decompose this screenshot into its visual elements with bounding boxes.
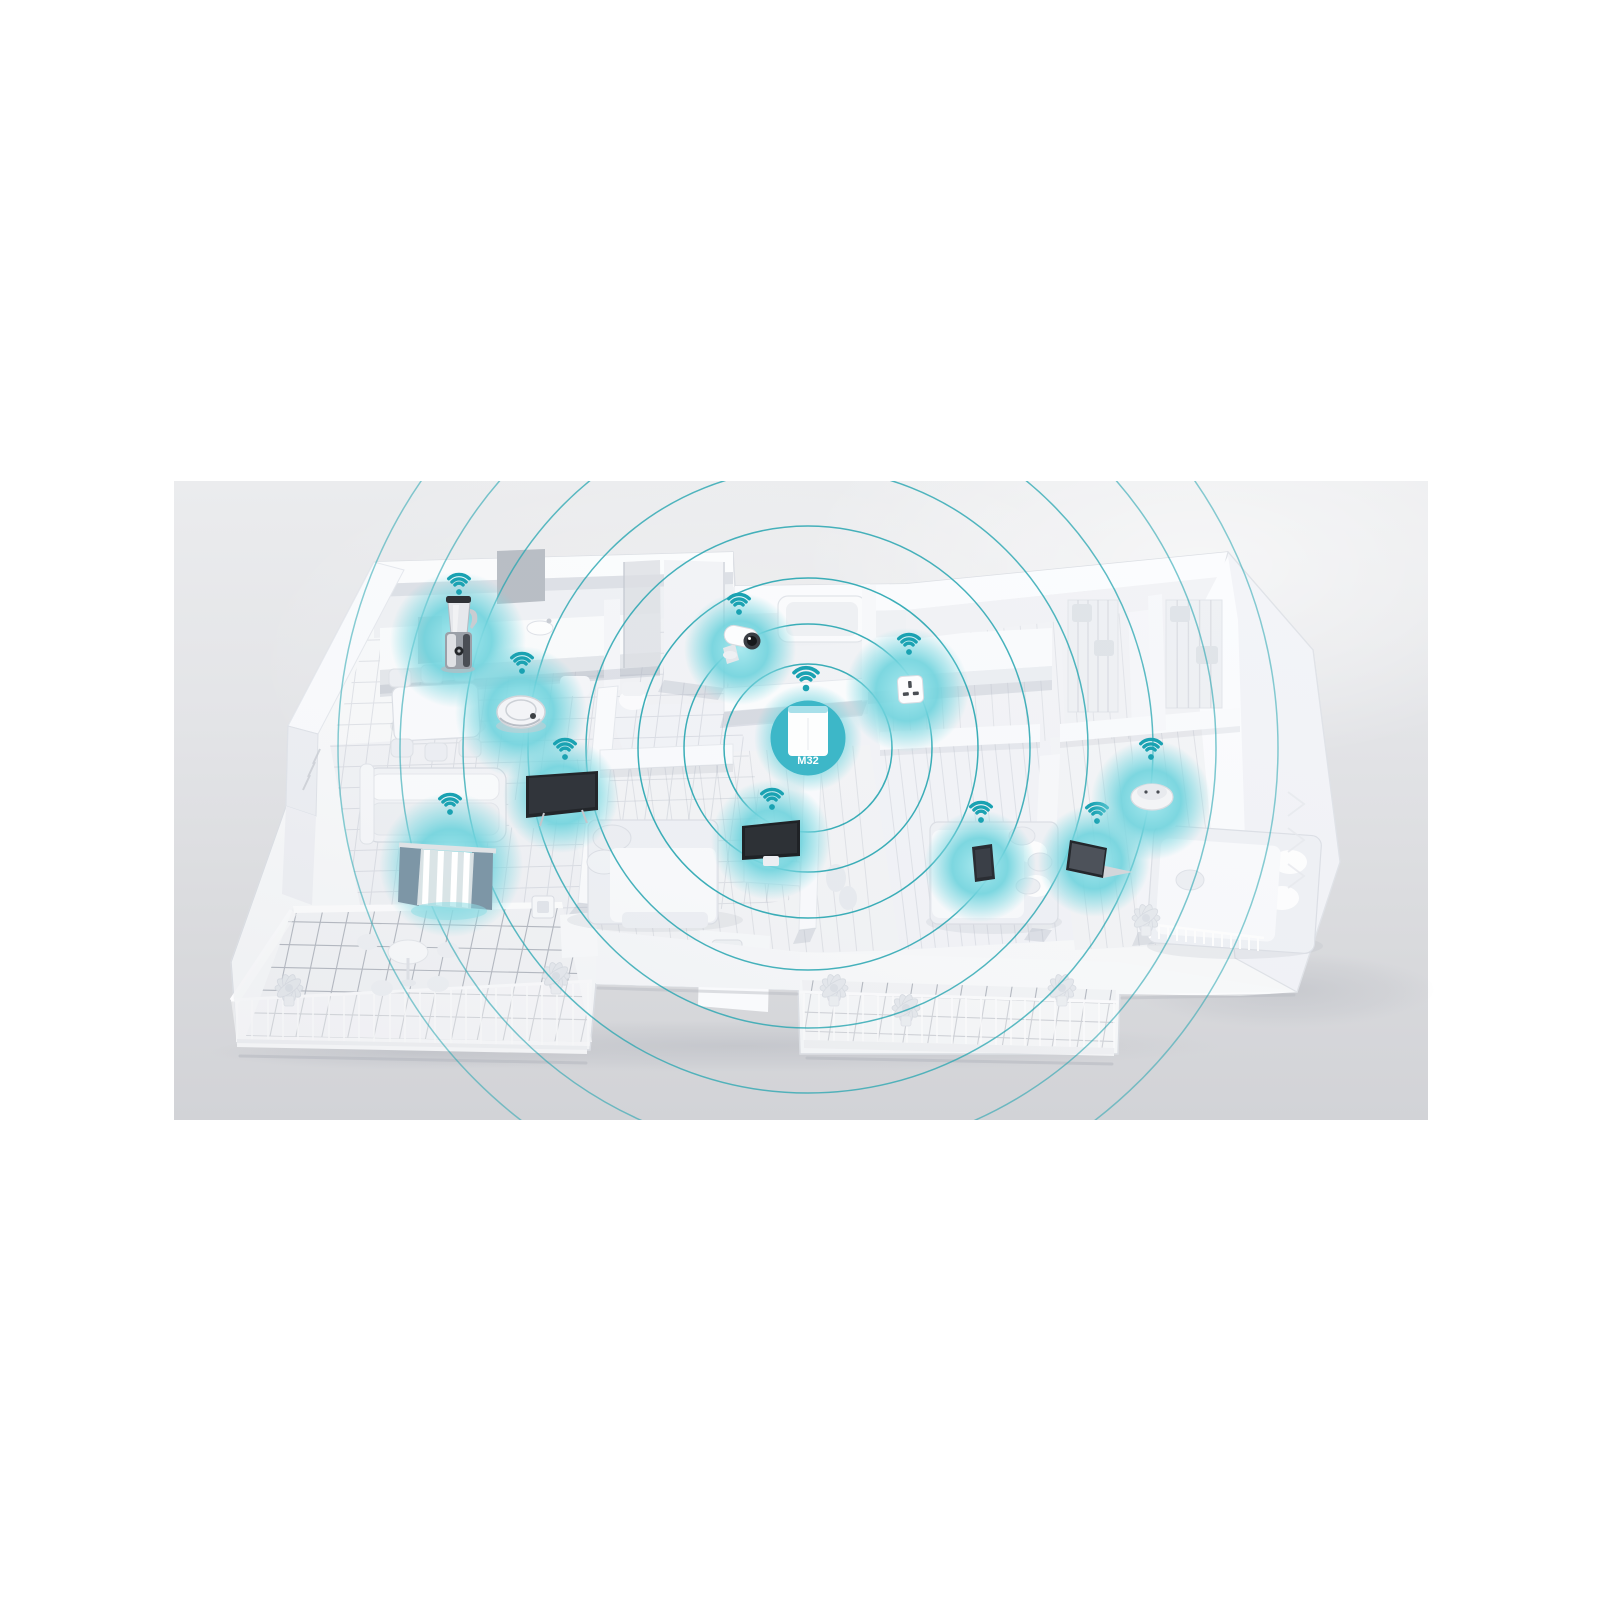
svg-text:M32: M32 — [797, 755, 818, 767]
